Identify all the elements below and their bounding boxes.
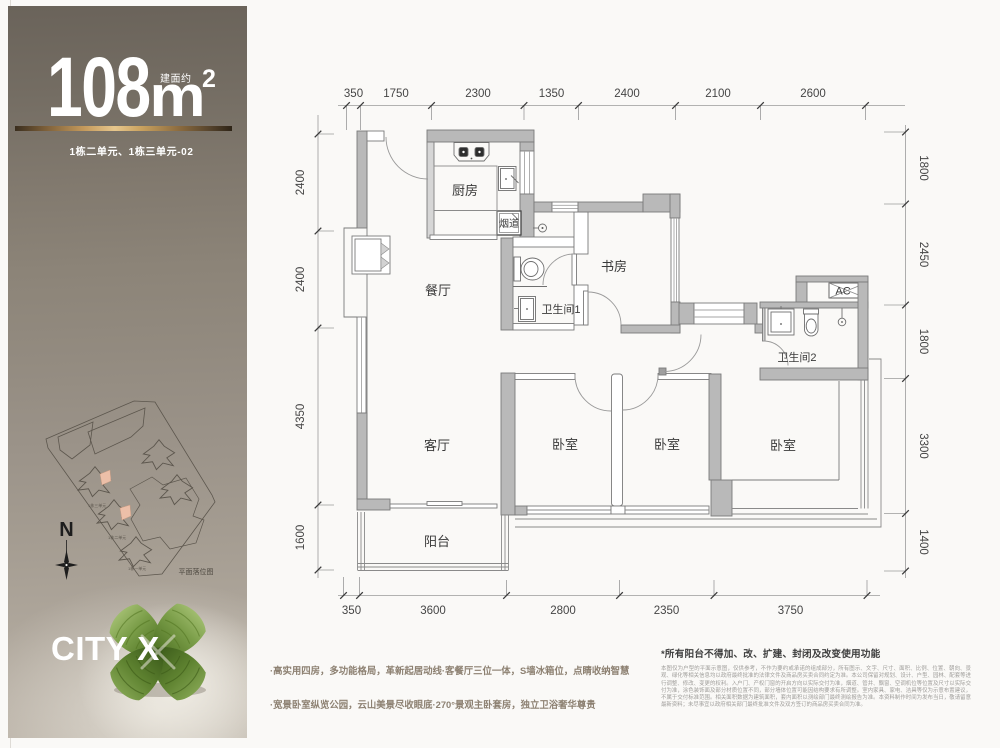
svg-text:餐厅: 餐厅 xyxy=(425,283,451,298)
svg-text:1350: 1350 xyxy=(539,88,565,100)
svg-text:1400: 1400 xyxy=(917,529,929,555)
svg-text:350: 350 xyxy=(344,88,363,100)
svg-text:1800: 1800 xyxy=(917,329,929,355)
svg-text:4350: 4350 xyxy=(295,404,307,430)
svg-text:卧室: 卧室 xyxy=(654,437,680,452)
svg-text:2600: 2600 xyxy=(800,88,826,100)
svg-text:厨房: 厨房 xyxy=(452,183,478,198)
svg-text:AC: AC xyxy=(835,286,850,298)
svg-text:2350: 2350 xyxy=(654,605,680,617)
svg-text:1750: 1750 xyxy=(383,88,409,100)
svg-text:卧室: 卧室 xyxy=(770,438,796,453)
svg-text:1600: 1600 xyxy=(295,525,307,551)
svg-text:2450: 2450 xyxy=(917,242,929,268)
svg-text:2300: 2300 xyxy=(465,88,491,100)
svg-text:3750: 3750 xyxy=(778,605,804,617)
svg-text:2800: 2800 xyxy=(550,605,576,617)
svg-text:2100: 2100 xyxy=(705,88,731,100)
svg-text:1800: 1800 xyxy=(917,155,929,181)
svg-text:卫生间2: 卫生间2 xyxy=(777,350,816,364)
svg-text:2400: 2400 xyxy=(614,88,640,100)
svg-text:书房: 书房 xyxy=(601,259,627,274)
svg-text:卫生间1: 卫生间1 xyxy=(541,302,580,316)
svg-text:350: 350 xyxy=(342,605,361,617)
svg-text:3300: 3300 xyxy=(917,433,929,459)
svg-text:客厅: 客厅 xyxy=(424,438,450,453)
svg-text:3600: 3600 xyxy=(420,605,446,617)
svg-text:卧室: 卧室 xyxy=(552,437,578,452)
svg-text:2400: 2400 xyxy=(295,170,307,196)
svg-text:烟道: 烟道 xyxy=(499,217,519,230)
svg-text:2400: 2400 xyxy=(295,267,307,293)
svg-text:阳台: 阳台 xyxy=(424,534,450,549)
